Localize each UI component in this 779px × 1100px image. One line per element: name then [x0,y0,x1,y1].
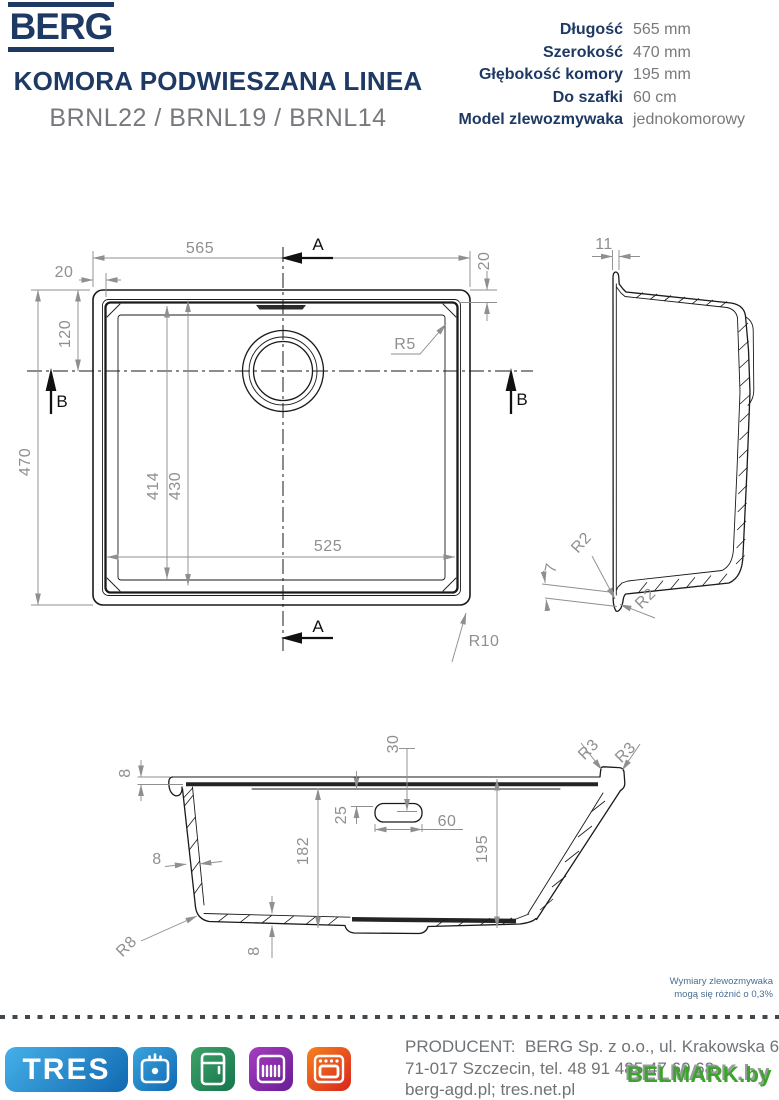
dim-470: 470 [17,448,34,476]
section-arrow-a-top [281,252,302,263]
dim-20-left: 20 [55,264,74,281]
dim-8-rim: 8 [117,768,134,777]
tres-logo: TRES [5,1047,128,1092]
radius-label-r5: R5 [394,336,415,353]
side-view: 11 R2 7 R2 [542,236,754,618]
section-label-b-left: B [56,392,67,411]
fridge-icon [191,1047,235,1091]
dim-8-wall: 8 [152,851,161,868]
dim-8-bottom: 8 [246,946,263,955]
top-view: 565 20 120 470 20 414 430 [17,235,533,662]
sink-icon [133,1047,177,1091]
dim-525: 525 [314,538,342,555]
dishwasher-icon [249,1047,293,1091]
dotted-separator [0,1015,779,1019]
tolerance-note-line2: mogą się różnić o 0,3% [670,988,773,1001]
tolerance-note: Wymiary zlewozmywaka mogą się różnić o 0… [670,975,773,1001]
overflow-hole [375,804,422,823]
dim-11: 11 [595,236,613,253]
dim-20-right: 20 [476,252,493,271]
dim-565: 565 [186,240,214,257]
dim-60: 60 [438,813,457,830]
dim-414: 414 [145,472,162,500]
dim-7: 7 [542,562,561,575]
radius-label-r2-upper: R2 [568,529,595,556]
dim-182: 182 [295,837,312,865]
belmark-watermark: BELMARK.by [627,1062,772,1088]
spec-sheet-page: BERG KOMORA PODWIESZANA LINEA BRNL22 / B… [0,0,779,1100]
overflow-slot-top [256,305,306,310]
dim-25: 25 [333,806,350,825]
producer-line1: PRODUCENT: BERG Sp. z o.o., ul. Krakowsk… [405,1036,775,1058]
dim-430: 430 [167,472,184,500]
section-label-a-top: A [312,235,324,254]
radius-label-r3-b: R3 [612,739,639,766]
oven-icon [307,1047,351,1091]
cross-section-view: 8 8 182 25 30 60 195 [113,735,640,961]
radius-label-r8: R8 [113,933,140,960]
dim-195: 195 [474,835,491,863]
radius-label-r3-a: R3 [575,736,602,763]
section-label-b-right: B [516,390,527,409]
radius-label-r10: R10 [469,633,500,650]
technical-drawing: 565 20 120 470 20 414 430 [0,0,779,1100]
dim-30: 30 [385,735,402,754]
tolerance-note-line1: Wymiary zlewozmywaka [670,975,773,988]
section-label-a-bottom: A [312,617,324,636]
dim-120: 120 [57,320,74,348]
section-arrow-a-bottom [281,632,302,643]
